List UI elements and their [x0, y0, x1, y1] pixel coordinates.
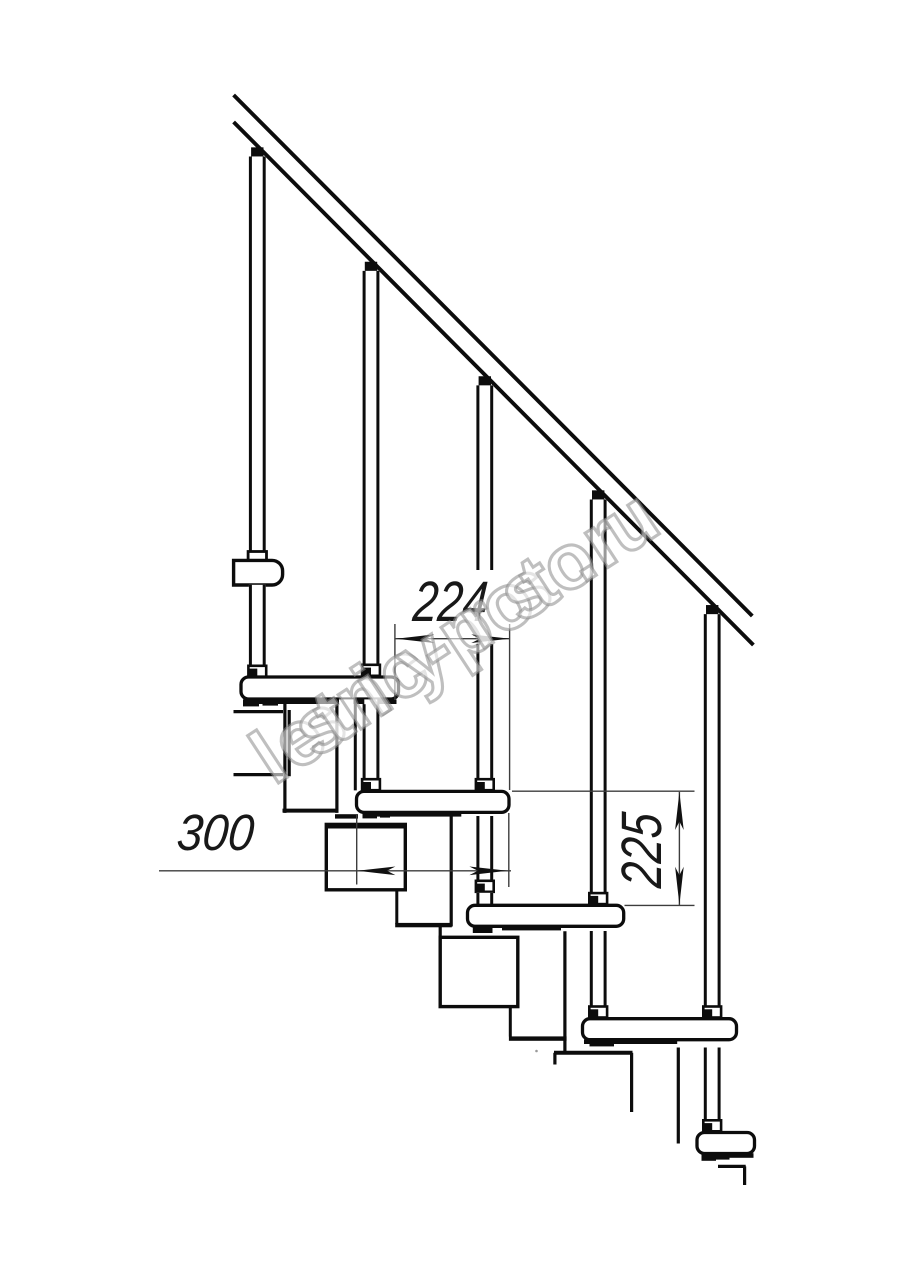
svg-text:225: 225: [610, 810, 673, 891]
svg-text:300: 300: [175, 805, 257, 862]
